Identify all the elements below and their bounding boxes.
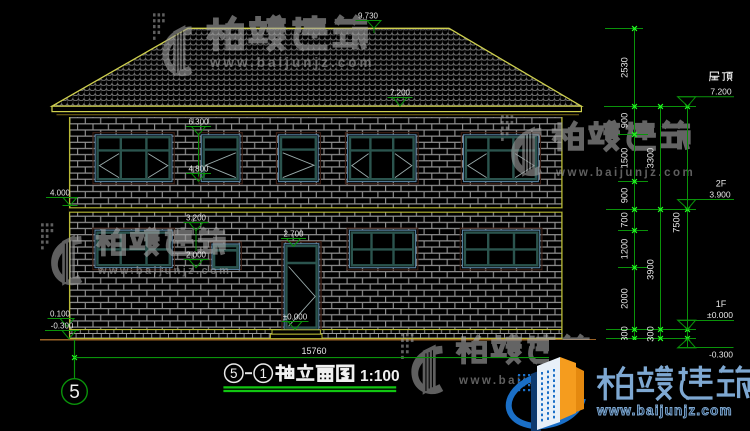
svg-text:5: 5	[69, 382, 80, 403]
svg-text:900: 900	[620, 113, 630, 129]
svg-text:www.baijunjz.com: www.baijunjz.com	[97, 265, 231, 277]
svg-text:3900: 3900	[646, 259, 656, 280]
svg-text:7.200: 7.200	[390, 89, 411, 98]
svg-text:9.730: 9.730	[358, 12, 379, 21]
svg-text:4.000: 4.000	[50, 189, 71, 198]
svg-text:300: 300	[646, 326, 656, 342]
svg-text:-0.300: -0.300	[51, 322, 74, 331]
svg-text:±0.000: ±0.000	[283, 313, 308, 322]
svg-text:2530: 2530	[620, 57, 630, 78]
svg-text:6.300: 6.300	[188, 118, 209, 127]
svg-text:1200: 1200	[620, 239, 630, 260]
svg-text:1500: 1500	[620, 148, 630, 169]
svg-text:2.700: 2.700	[283, 230, 304, 239]
svg-text:3300: 3300	[646, 148, 656, 169]
svg-text:-0.300: -0.300	[709, 349, 733, 359]
svg-text:±0.000: ±0.000	[707, 310, 733, 320]
svg-text:15760: 15760	[301, 346, 326, 356]
svg-text:0.100: 0.100	[50, 310, 71, 319]
svg-text:900: 900	[620, 188, 630, 204]
svg-text:www.baijunjz.com: www.baijunjz.com	[596, 403, 733, 418]
svg-text:1: 1	[259, 366, 267, 381]
svg-text:3.200: 3.200	[186, 214, 207, 223]
svg-text:7.200: 7.200	[710, 87, 732, 97]
svg-text:2.000: 2.000	[186, 251, 207, 260]
svg-text:700: 700	[620, 212, 630, 228]
svg-text:1F: 1F	[716, 299, 727, 309]
svg-text:7500: 7500	[672, 212, 682, 233]
svg-text:www.baijunjz.com: www.baijunjz.com	[209, 55, 375, 70]
svg-text:4.800: 4.800	[188, 165, 209, 174]
svg-text:3.900: 3.900	[709, 190, 731, 200]
svg-text:2000: 2000	[620, 288, 630, 309]
svg-text:2F: 2F	[716, 179, 727, 189]
svg-text:300: 300	[620, 326, 630, 342]
svg-text:1:100: 1:100	[360, 368, 400, 385]
svg-text:5: 5	[230, 366, 238, 381]
